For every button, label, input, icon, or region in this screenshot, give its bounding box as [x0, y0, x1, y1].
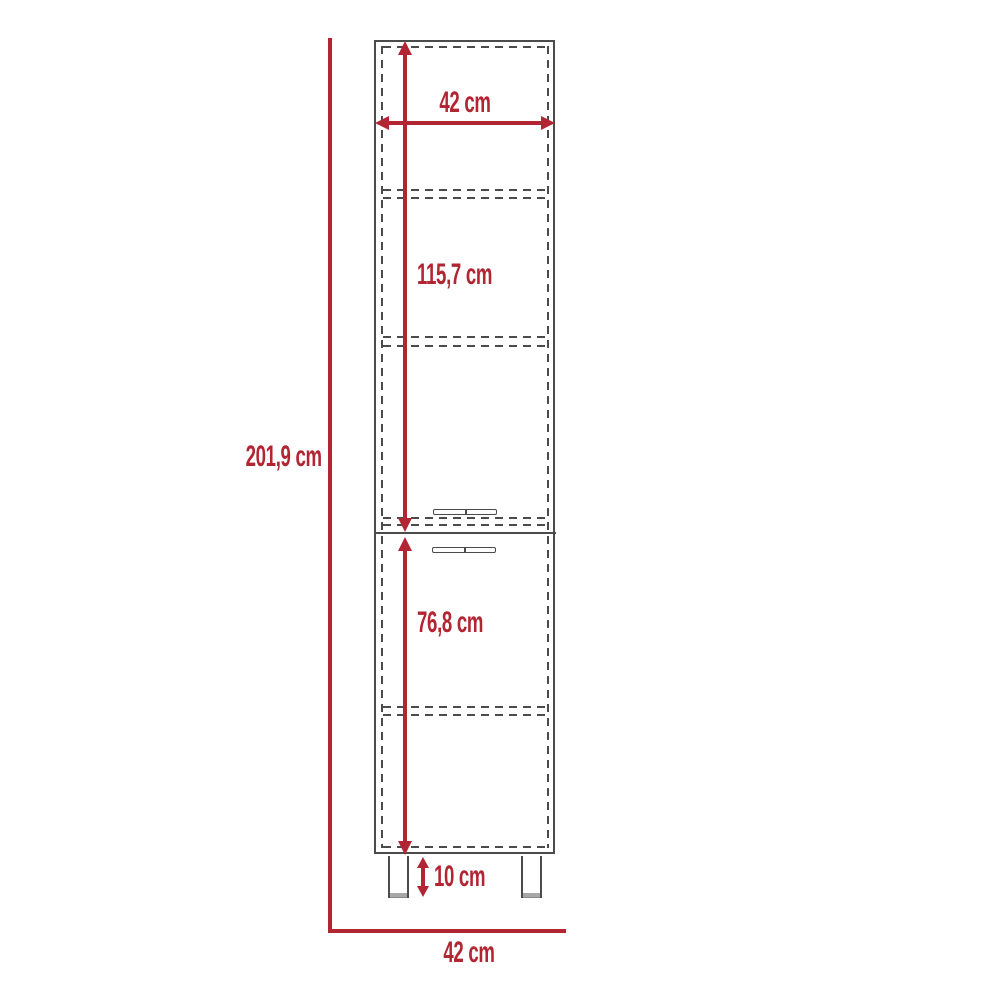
- shelf-dashed-line: [383, 189, 548, 191]
- shelf-dashed-line: [383, 714, 548, 716]
- dim-lower-height-line: [403, 549, 407, 843]
- door-handle-upper: [433, 509, 497, 515]
- handle-divider-tick: [465, 510, 467, 514]
- arrowhead-right-icon: [541, 116, 555, 130]
- dim-leg-height-label: 10 cm: [434, 862, 485, 892]
- dim-lower-height-label: 76,8 cm: [417, 608, 483, 638]
- arrowhead-down-icon: [417, 886, 429, 897]
- leg-left: [388, 856, 409, 898]
- dim-total-height-line: [328, 38, 332, 933]
- arrowhead-down-icon: [398, 841, 412, 855]
- arrowhead-left-icon: [375, 116, 389, 130]
- shelf-dashed-line: [383, 336, 548, 338]
- cabinet-inner-dashed-right: [547, 46, 549, 848]
- leg-cap: [523, 893, 540, 898]
- dimension-diagram: 42 cm 115,7 cm 201,9 cm 76,8 cm 10 cm 42…: [0, 0, 1000, 1000]
- cabinet-divider: [374, 532, 556, 534]
- shelf-dashed-line: [383, 197, 548, 199]
- dim-top-width-label: 42 cm: [409, 88, 522, 118]
- dim-upper-height-label: 115,7 cm: [417, 260, 492, 290]
- dim-total-height-label: 201,9 cm: [246, 442, 320, 472]
- cabinet-inner-dashed-left: [381, 46, 383, 848]
- dim-bottom-width-label: 42 cm: [410, 938, 528, 968]
- arrowhead-down-icon: [398, 518, 412, 532]
- shelf-dashed-line: [383, 706, 548, 708]
- leg-cap: [390, 893, 407, 898]
- dim-top-width-line: [388, 121, 542, 125]
- leg-right: [521, 856, 542, 898]
- cabinet-outline: [374, 40, 555, 854]
- handle-divider-tick: [464, 548, 466, 552]
- shelf-dashed-line: [383, 345, 548, 347]
- door-handle-lower: [432, 547, 496, 553]
- dim-bottom-width-line: [328, 929, 566, 933]
- dim-upper-height-line: [403, 53, 407, 520]
